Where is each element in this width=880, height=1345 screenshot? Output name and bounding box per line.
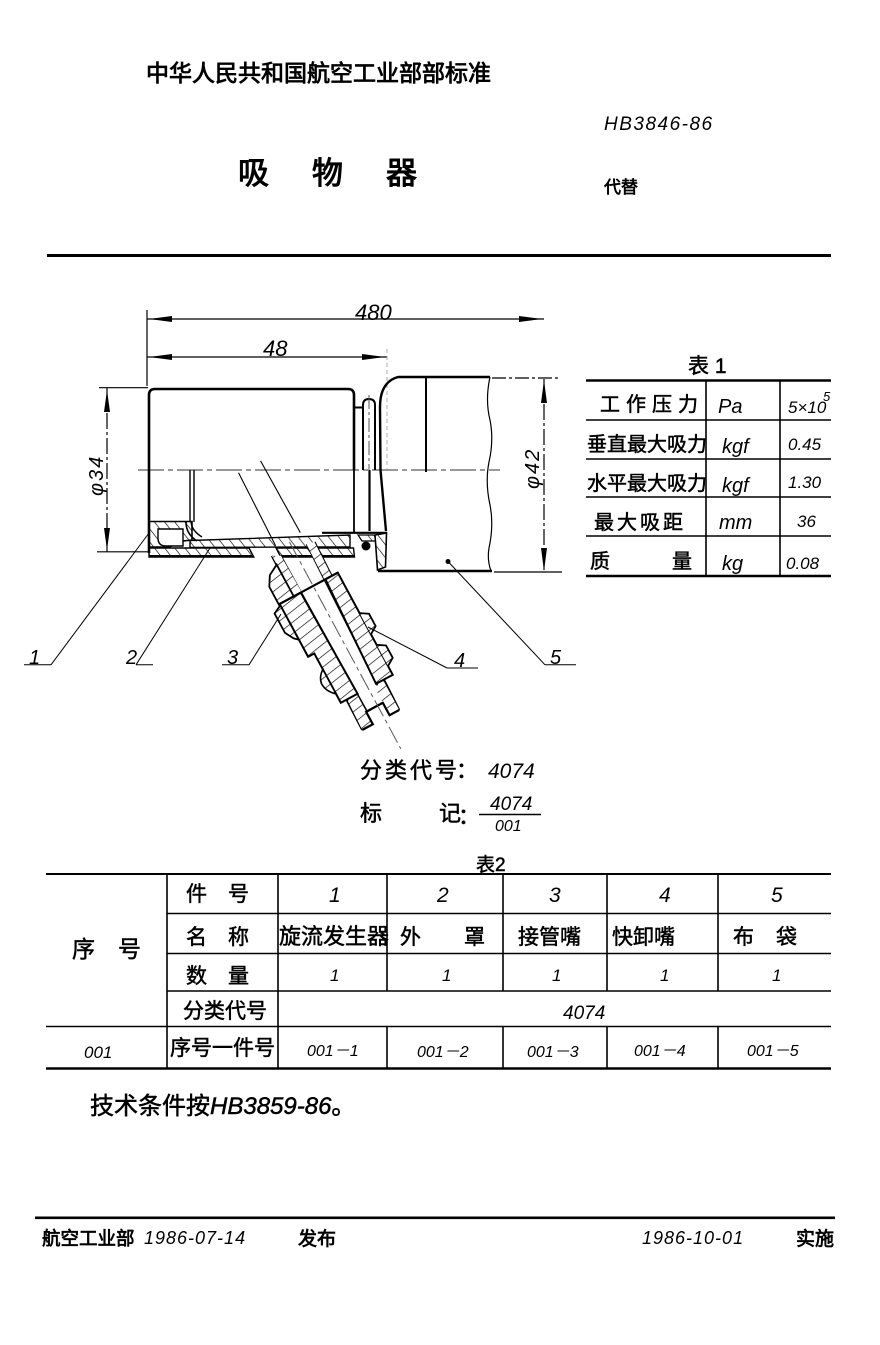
svg-text:号: 号 — [228, 883, 249, 906]
svg-text:质: 质 — [590, 550, 610, 573]
svg-text:1986-07-14: 1986-07-14 — [144, 1228, 246, 1248]
svg-text:1.30: 1.30 — [788, 473, 822, 492]
svg-text:001: 001 — [495, 818, 522, 835]
svg-text:4: 4 — [659, 884, 671, 907]
svg-text:发布: 发布 — [297, 1227, 336, 1250]
svg-text:36: 36 — [797, 512, 816, 531]
svg-text:0.08: 0.08 — [786, 554, 820, 573]
svg-text:HB3846-86: HB3846-86 — [604, 114, 714, 135]
svg-text:1: 1 — [442, 966, 451, 985]
svg-text:工作压力: 工作压力 — [600, 393, 704, 416]
svg-text:φ42: φ42 — [522, 448, 544, 489]
svg-text:kg: kg — [722, 553, 743, 575]
svg-text:标: 标 — [360, 801, 382, 826]
svg-text:件: 件 — [186, 883, 207, 906]
svg-text:罩: 罩 — [464, 926, 485, 949]
svg-text:：: ： — [456, 758, 478, 783]
svg-text:垂直最大吸力: 垂直最大吸力 — [587, 433, 707, 456]
svg-text:接管嘴: 接管嘴 — [518, 926, 581, 949]
svg-text:表 1: 表 1 — [688, 355, 727, 378]
svg-text:4074: 4074 — [563, 1003, 605, 1024]
svg-text:kgf: kgf — [722, 436, 751, 458]
svg-text:3: 3 — [549, 884, 561, 907]
svg-text:号: 号 — [118, 936, 141, 962]
svg-text:001－3: 001－3 — [527, 1044, 579, 1061]
svg-text:代替: 代替 — [603, 177, 639, 197]
svg-text:5: 5 — [771, 884, 783, 907]
svg-text:实施: 实施 — [796, 1227, 834, 1250]
svg-text:4074: 4074 — [488, 760, 535, 783]
svg-text:Pa: Pa — [718, 396, 742, 418]
svg-text:2: 2 — [125, 647, 137, 669]
svg-text:kgf: kgf — [722, 475, 751, 497]
svg-text:2: 2 — [436, 884, 449, 907]
svg-text:5: 5 — [823, 389, 831, 404]
svg-text:5×10: 5×10 — [788, 398, 827, 417]
svg-text:0.45: 0.45 — [788, 435, 822, 454]
svg-text:袋: 袋 — [776, 926, 797, 949]
svg-text:水平最大吸力: 水平最大吸力 — [587, 472, 707, 495]
svg-text:称: 称 — [228, 926, 249, 949]
svg-text:1: 1 — [660, 966, 669, 985]
svg-text:4074: 4074 — [490, 794, 532, 815]
svg-text:技术条件按HB3859-86。: 技术条件按HB3859-86。 — [90, 1093, 355, 1120]
svg-text:旋流发生器: 旋流发生器 — [279, 924, 389, 949]
svg-text:1: 1 — [29, 647, 40, 669]
svg-text:量: 量 — [672, 551, 692, 573]
svg-text:480: 480 — [355, 300, 392, 325]
svg-text:1: 1 — [552, 966, 561, 985]
svg-text:001: 001 — [84, 1043, 112, 1062]
svg-text:4: 4 — [454, 650, 465, 672]
svg-text:001－2: 001－2 — [417, 1044, 469, 1061]
svg-text:吸物器: 吸物器 — [238, 156, 460, 191]
svg-text:mm: mm — [719, 512, 752, 534]
svg-text:布: 布 — [733, 926, 754, 949]
svg-text:001－1: 001－1 — [307, 1043, 359, 1060]
svg-text:001－4: 001－4 — [634, 1043, 686, 1060]
svg-text:序号一件号: 序号一件号 — [170, 1037, 275, 1060]
svg-text:快卸嘴: 快卸嘴 — [612, 926, 675, 949]
svg-text:序: 序 — [72, 936, 95, 962]
svg-text:航空工业部: 航空工业部 — [42, 1228, 135, 1249]
svg-text:外: 外 — [400, 926, 421, 949]
svg-text:名: 名 — [186, 926, 207, 949]
svg-text:量: 量 — [228, 965, 249, 988]
svg-text:5: 5 — [550, 647, 562, 669]
svg-text:1: 1 — [329, 884, 341, 907]
svg-text:3: 3 — [227, 647, 238, 669]
svg-text:001－5: 001－5 — [747, 1043, 799, 1060]
svg-text:1: 1 — [772, 966, 781, 985]
svg-text:表2: 表2 — [476, 854, 506, 876]
svg-text:φ34: φ34 — [86, 455, 108, 496]
svg-text:分类代号: 分类代号 — [360, 758, 460, 783]
svg-text:48: 48 — [263, 336, 288, 361]
svg-text:最大吸距: 最大吸距 — [594, 511, 686, 534]
svg-text:1: 1 — [330, 966, 339, 985]
svg-text:1986-10-01: 1986-10-01 — [642, 1228, 744, 1248]
svg-text:中华人民共和国航空工业部部标准: 中华人民共和国航空工业部部标准 — [146, 60, 491, 86]
svg-text:：: ： — [458, 804, 480, 829]
svg-text:数: 数 — [186, 965, 207, 988]
svg-text:分类代号: 分类代号 — [183, 1000, 267, 1023]
